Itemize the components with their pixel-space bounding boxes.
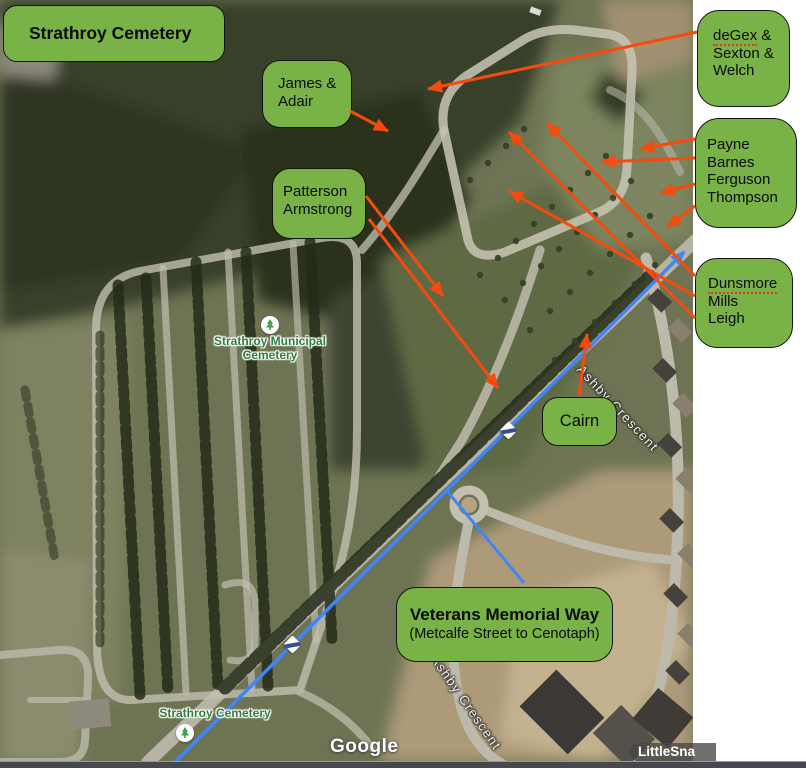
annotation-veterans-memorial-way: Veterans Memorial Way (Metcalfe Street t… xyxy=(396,587,613,662)
degex-line1: deGex & xyxy=(713,27,789,45)
municipal-cemetery-label-line1: Strathroy Municipal xyxy=(200,334,340,348)
annotation-dunsmore-mills-leigh: Dunsmore Mills Leigh xyxy=(695,258,793,348)
james-adair-line2: Adair xyxy=(278,93,351,111)
payne-line1: Payne xyxy=(707,136,796,154)
strathroy-cemetery-map-label[interactable]: Strathroy Cemetery xyxy=(155,706,275,720)
payne-line4: Thompson xyxy=(707,189,796,207)
patterson-line1: Patterson xyxy=(283,183,365,201)
veterans-subtitle: (Metcalfe Street to Cenotaph) xyxy=(397,626,612,644)
side-panel xyxy=(693,0,806,762)
dunsmore-line2: Mills xyxy=(708,293,792,311)
strathroy-cemetery-tree-marker[interactable] xyxy=(176,724,194,742)
degex-line3: Welch xyxy=(713,62,789,80)
dunsmore-line3: Leigh xyxy=(708,310,792,328)
title-text: Strathroy Cemetery xyxy=(29,25,191,43)
municipal-cemetery-label[interactable]: Strathroy Municipal Cemetery xyxy=(200,334,340,362)
cairn-text: Cairn xyxy=(560,412,599,430)
payne-line3: Ferguson xyxy=(707,171,796,189)
municipal-cemetery-label-line2: Cemetery xyxy=(200,348,340,362)
street-label-ashby-crescent-bottom: Ashby Crescent xyxy=(428,652,505,753)
road-shield-marker xyxy=(283,635,301,653)
shield-glyph xyxy=(499,428,517,435)
annotation-payne-barnes-ferguson-thompson: Payne Barnes Ferguson Thompson xyxy=(695,118,797,228)
dunsmore-line1: Dunsmore xyxy=(708,275,792,293)
james-adair-line1: James & xyxy=(278,75,351,93)
littlesnapper-watermark: LittleSna xyxy=(629,743,716,761)
degex-word-misspelled: deGex xyxy=(713,27,757,46)
patterson-line2: Armstrong xyxy=(283,201,365,219)
dunsmore-word-misspelled: Dunsmore xyxy=(708,275,777,294)
annotation-degex-sexton-welch: deGex & Sexton & Welch xyxy=(697,10,790,107)
annotation-patterson-armstrong: Patterson Armstrong xyxy=(272,168,366,239)
tree-icon xyxy=(264,319,276,331)
google-logo[interactable]: Google xyxy=(330,736,398,758)
payne-line2: Barnes xyxy=(707,154,796,172)
degex-line2: Sexton & xyxy=(713,45,789,63)
veterans-title: Veterans Memorial Way xyxy=(397,606,612,624)
annotation-cairn: Cairn xyxy=(542,397,617,446)
degex-word-suffix: & xyxy=(757,27,771,44)
municipal-cemetery-tree-marker[interactable] xyxy=(261,316,279,334)
tree-icon xyxy=(179,727,191,739)
road-shield-marker xyxy=(499,421,517,439)
title-box: Strathroy Cemetery xyxy=(3,5,225,62)
annotated-map-screenshot: Strathroy Municipal Cemetery Strathroy C… xyxy=(0,0,806,768)
window-bottom-bar xyxy=(0,761,806,768)
shield-glyph xyxy=(283,642,301,649)
annotation-james-adair: James & Adair xyxy=(262,60,352,128)
